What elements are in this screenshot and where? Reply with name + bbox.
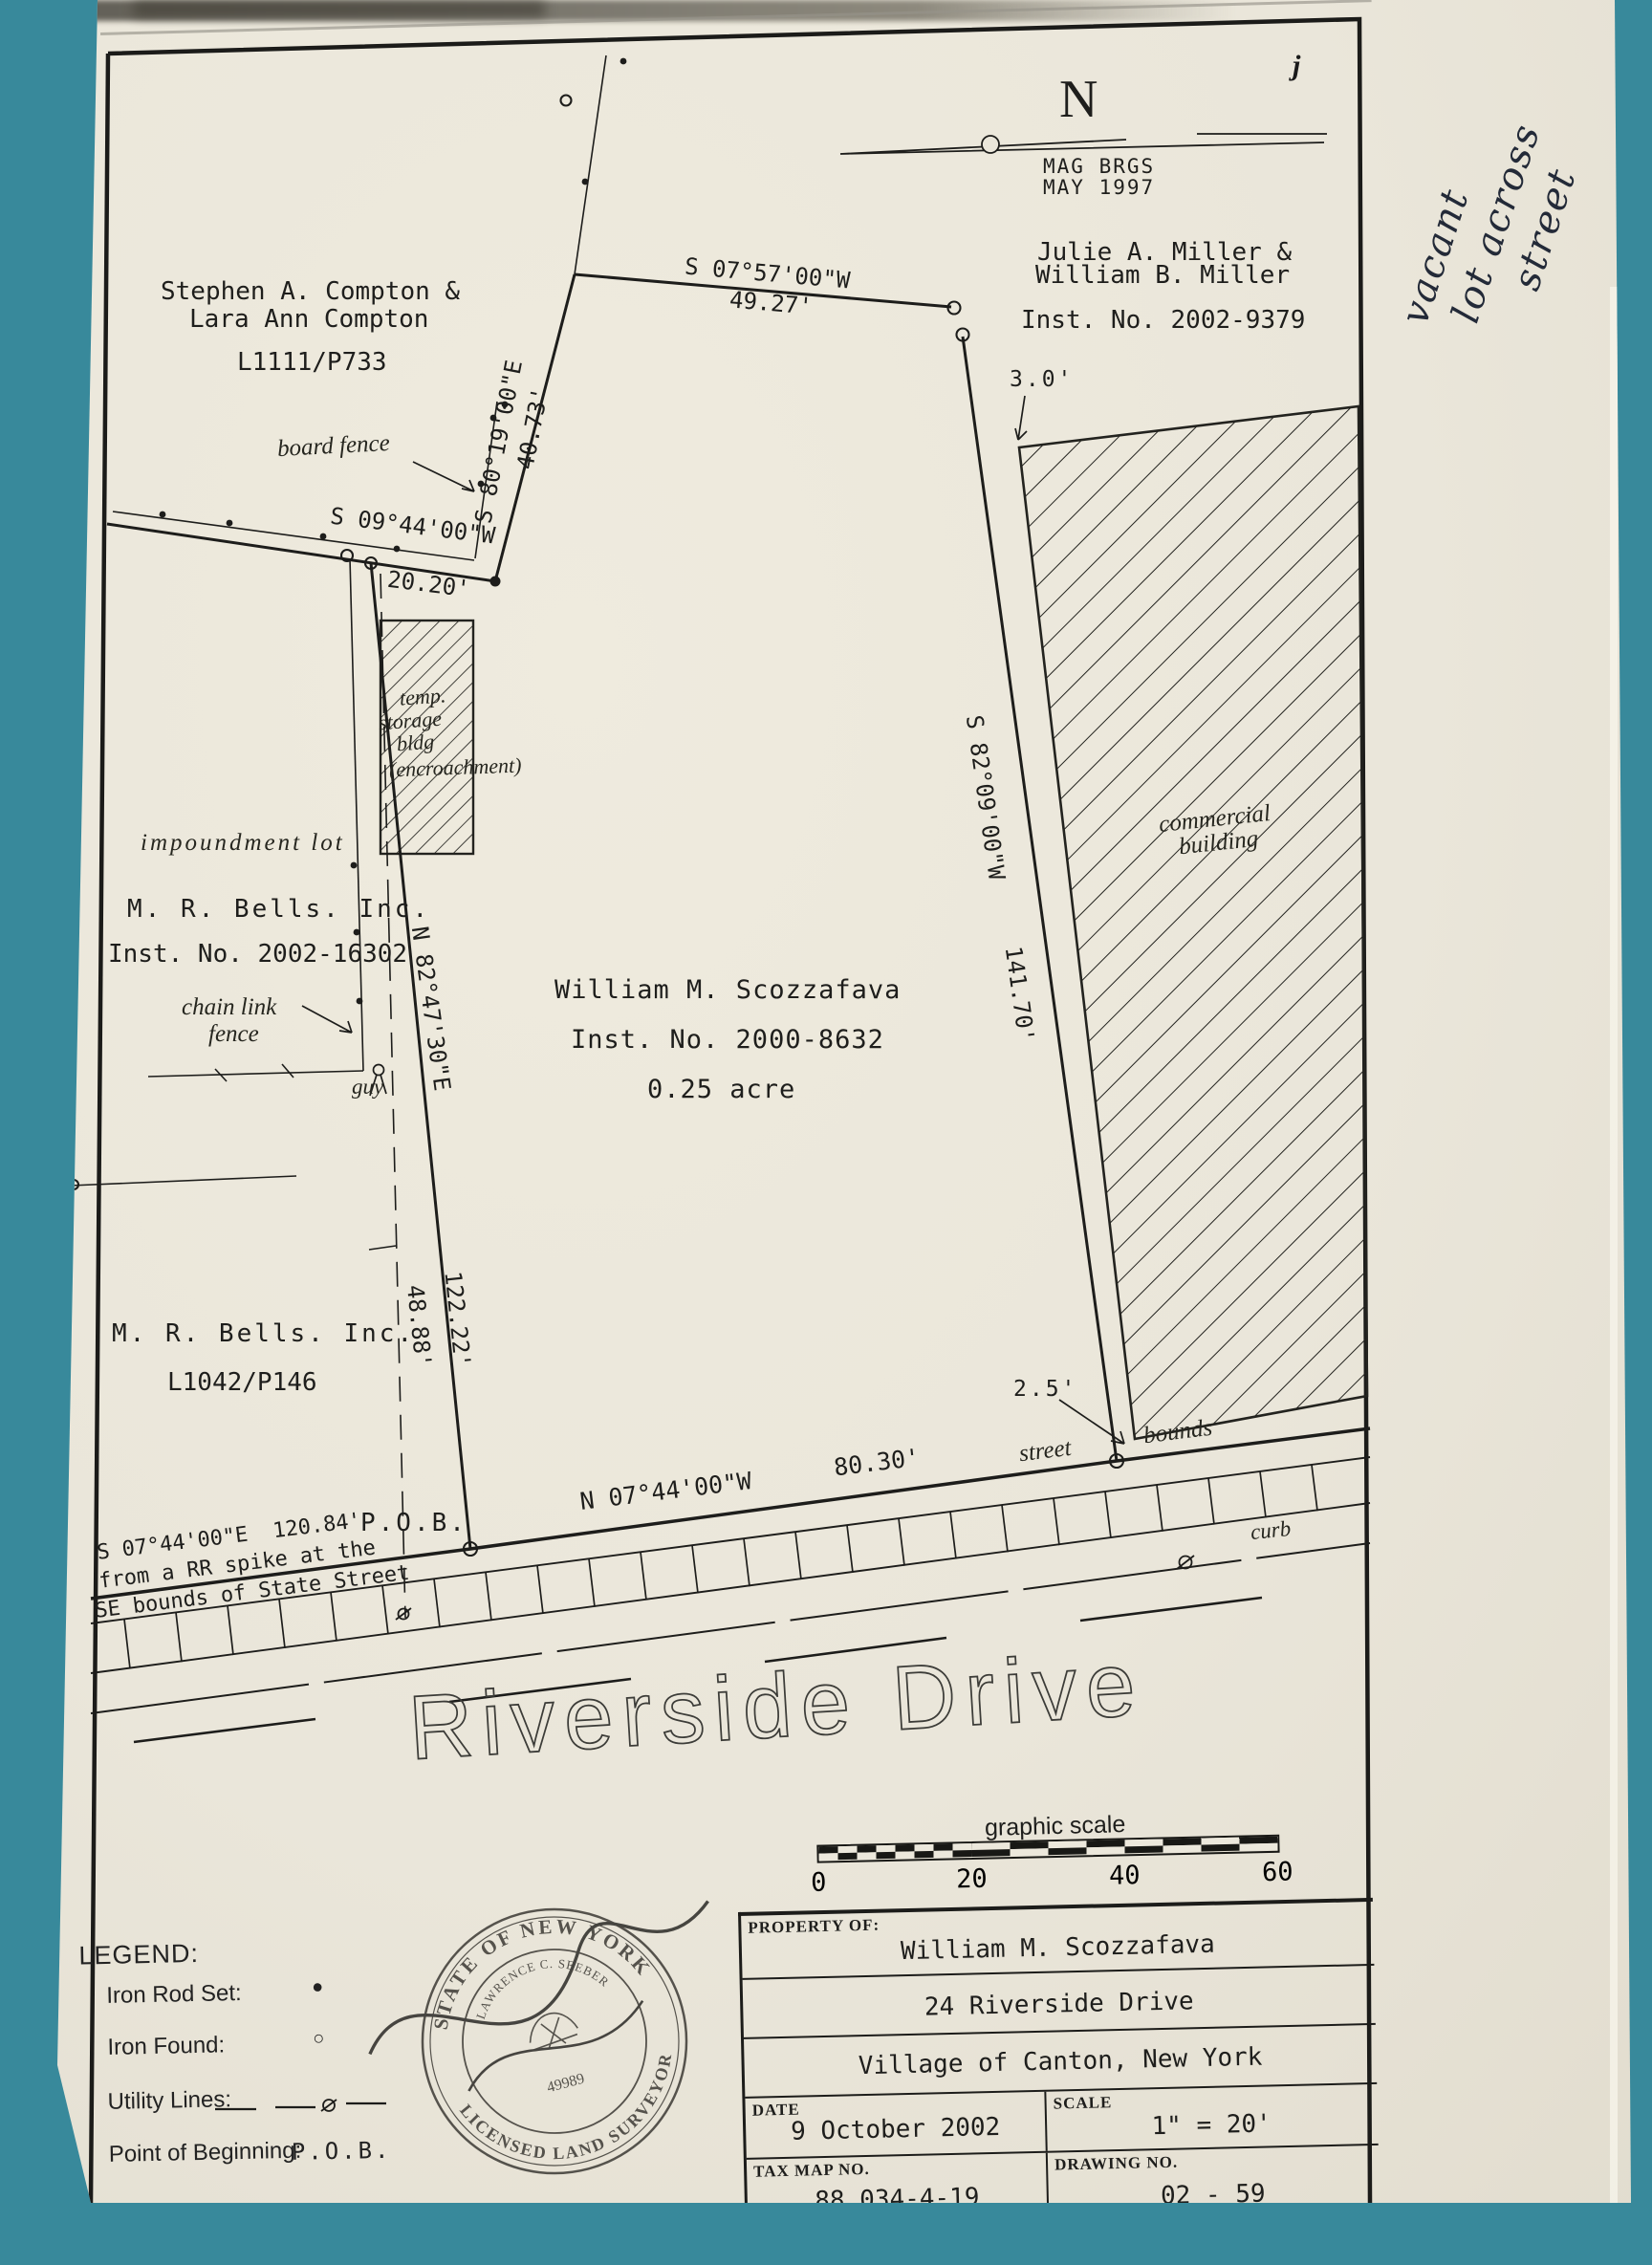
scale-label: SCALE: [1053, 2093, 1112, 2113]
stamp-number: 49989: [545, 2071, 586, 2097]
fence-lines: [71, 55, 606, 1250]
drawing-no-value: 02 - 59: [1047, 2177, 1380, 2213]
tax-map-value: 88.034-4-19: [748, 2182, 1048, 2217]
subject-area: 0.25 acre: [647, 1075, 795, 1104]
title-city: Village of Canton, New York: [744, 2040, 1377, 2083]
north-arrow-icon: [840, 134, 1327, 154]
property-of-label: PROPERTY OF:: [748, 1916, 880, 1938]
scale-tick-40: 40: [1109, 1861, 1141, 1891]
compton-name-2: Lara Ann Compton: [189, 305, 428, 334]
mag-brgs: MAG BRGS: [1043, 155, 1155, 178]
iron-found-icon: ○: [313, 2028, 325, 2050]
title-row-tax-drawing: TAX MAP NO. 88.034-4-19 DRAWING NO. 02 -…: [747, 2145, 1380, 2265]
curb-label: curb: [1250, 1516, 1293, 1545]
title-block: PROPERTY OF: William M. Scozzafava 24 Ri…: [738, 1898, 1380, 2260]
drawing-no-label: DRAWING NO.: [1054, 2153, 1178, 2175]
temp-bldg-label-4: (encroachment): [389, 753, 522, 783]
survey-sheet: Riverside Drive N MAG BRGS MAY 1997 Step…: [0, 0, 1652, 2203]
subject-inst: Inst. No. 2000-8632: [571, 1025, 884, 1055]
chain-link-label-1: chain link: [182, 994, 276, 1021]
ink-mark: j: [1293, 50, 1300, 82]
bells-north-name: M. R. Bells. Inc.: [127, 895, 430, 924]
scale-tick-20: 20: [956, 1864, 988, 1895]
guy-label: guy: [352, 1075, 383, 1100]
bells-south-name: M. R. Bells. Inc.: [112, 1319, 415, 1348]
legend-iron-found-label: Iron Found:: [107, 2032, 225, 2061]
legend-pob-label: Point of Beginning:: [109, 2138, 302, 2168]
iron-rod-icon: ●: [312, 1976, 324, 1998]
impoundment-label: impoundment lot: [141, 830, 345, 857]
chain-link-label-2: fence: [208, 1021, 259, 1048]
bells-north-inst: Inst. No. 2002-16302: [108, 940, 407, 969]
legend-title: LEGEND:: [78, 1939, 199, 1971]
legend-pob-value: P.O.B.: [291, 2137, 391, 2166]
offset-3-0: 3.0': [1010, 367, 1074, 392]
scale-tick-0: 0: [811, 1867, 827, 1897]
bells-south-deed: L1042/P146: [167, 1368, 317, 1397]
street-name-text: Riverside Drive: [406, 1633, 1147, 1779]
commercial-building-shape: [1019, 406, 1367, 1439]
compton-name-1: Stephen A. Compton &: [161, 277, 460, 306]
compton-deed: L1111/P733: [237, 348, 387, 377]
subject-owner: William M. Scozzafava: [554, 975, 901, 1005]
tax-map-label: TAX MAP NO.: [753, 2160, 870, 2182]
legend-utility-label: Utility Lines:: [107, 2086, 231, 2116]
north-letter: N: [1059, 69, 1098, 130]
scale-tick-60: 60: [1262, 1857, 1293, 1887]
title-divider-2: [1046, 2153, 1050, 2258]
title-address: 24 Riverside Drive: [743, 1983, 1376, 2026]
photo-scene: Riverside Drive N MAG BRGS MAY 1997 Step…: [0, 0, 1652, 2203]
scale-bar: [816, 1835, 1279, 1863]
miller-inst: Inst. No. 2002-9379: [1021, 306, 1305, 335]
temp-bldg-label-3: bldg: [396, 730, 435, 757]
pob-label: P.O.B.: [360, 1509, 467, 1537]
offset-2-5: 2.5': [1013, 1377, 1077, 1402]
mag-date: MAY 1997: [1043, 176, 1155, 199]
legend-iron-rod-label: Iron Rod Set:: [106, 1980, 242, 2010]
date-value: 9 October 2002: [746, 2112, 1046, 2147]
miller-name-2: William B. Miller: [1035, 261, 1290, 290]
